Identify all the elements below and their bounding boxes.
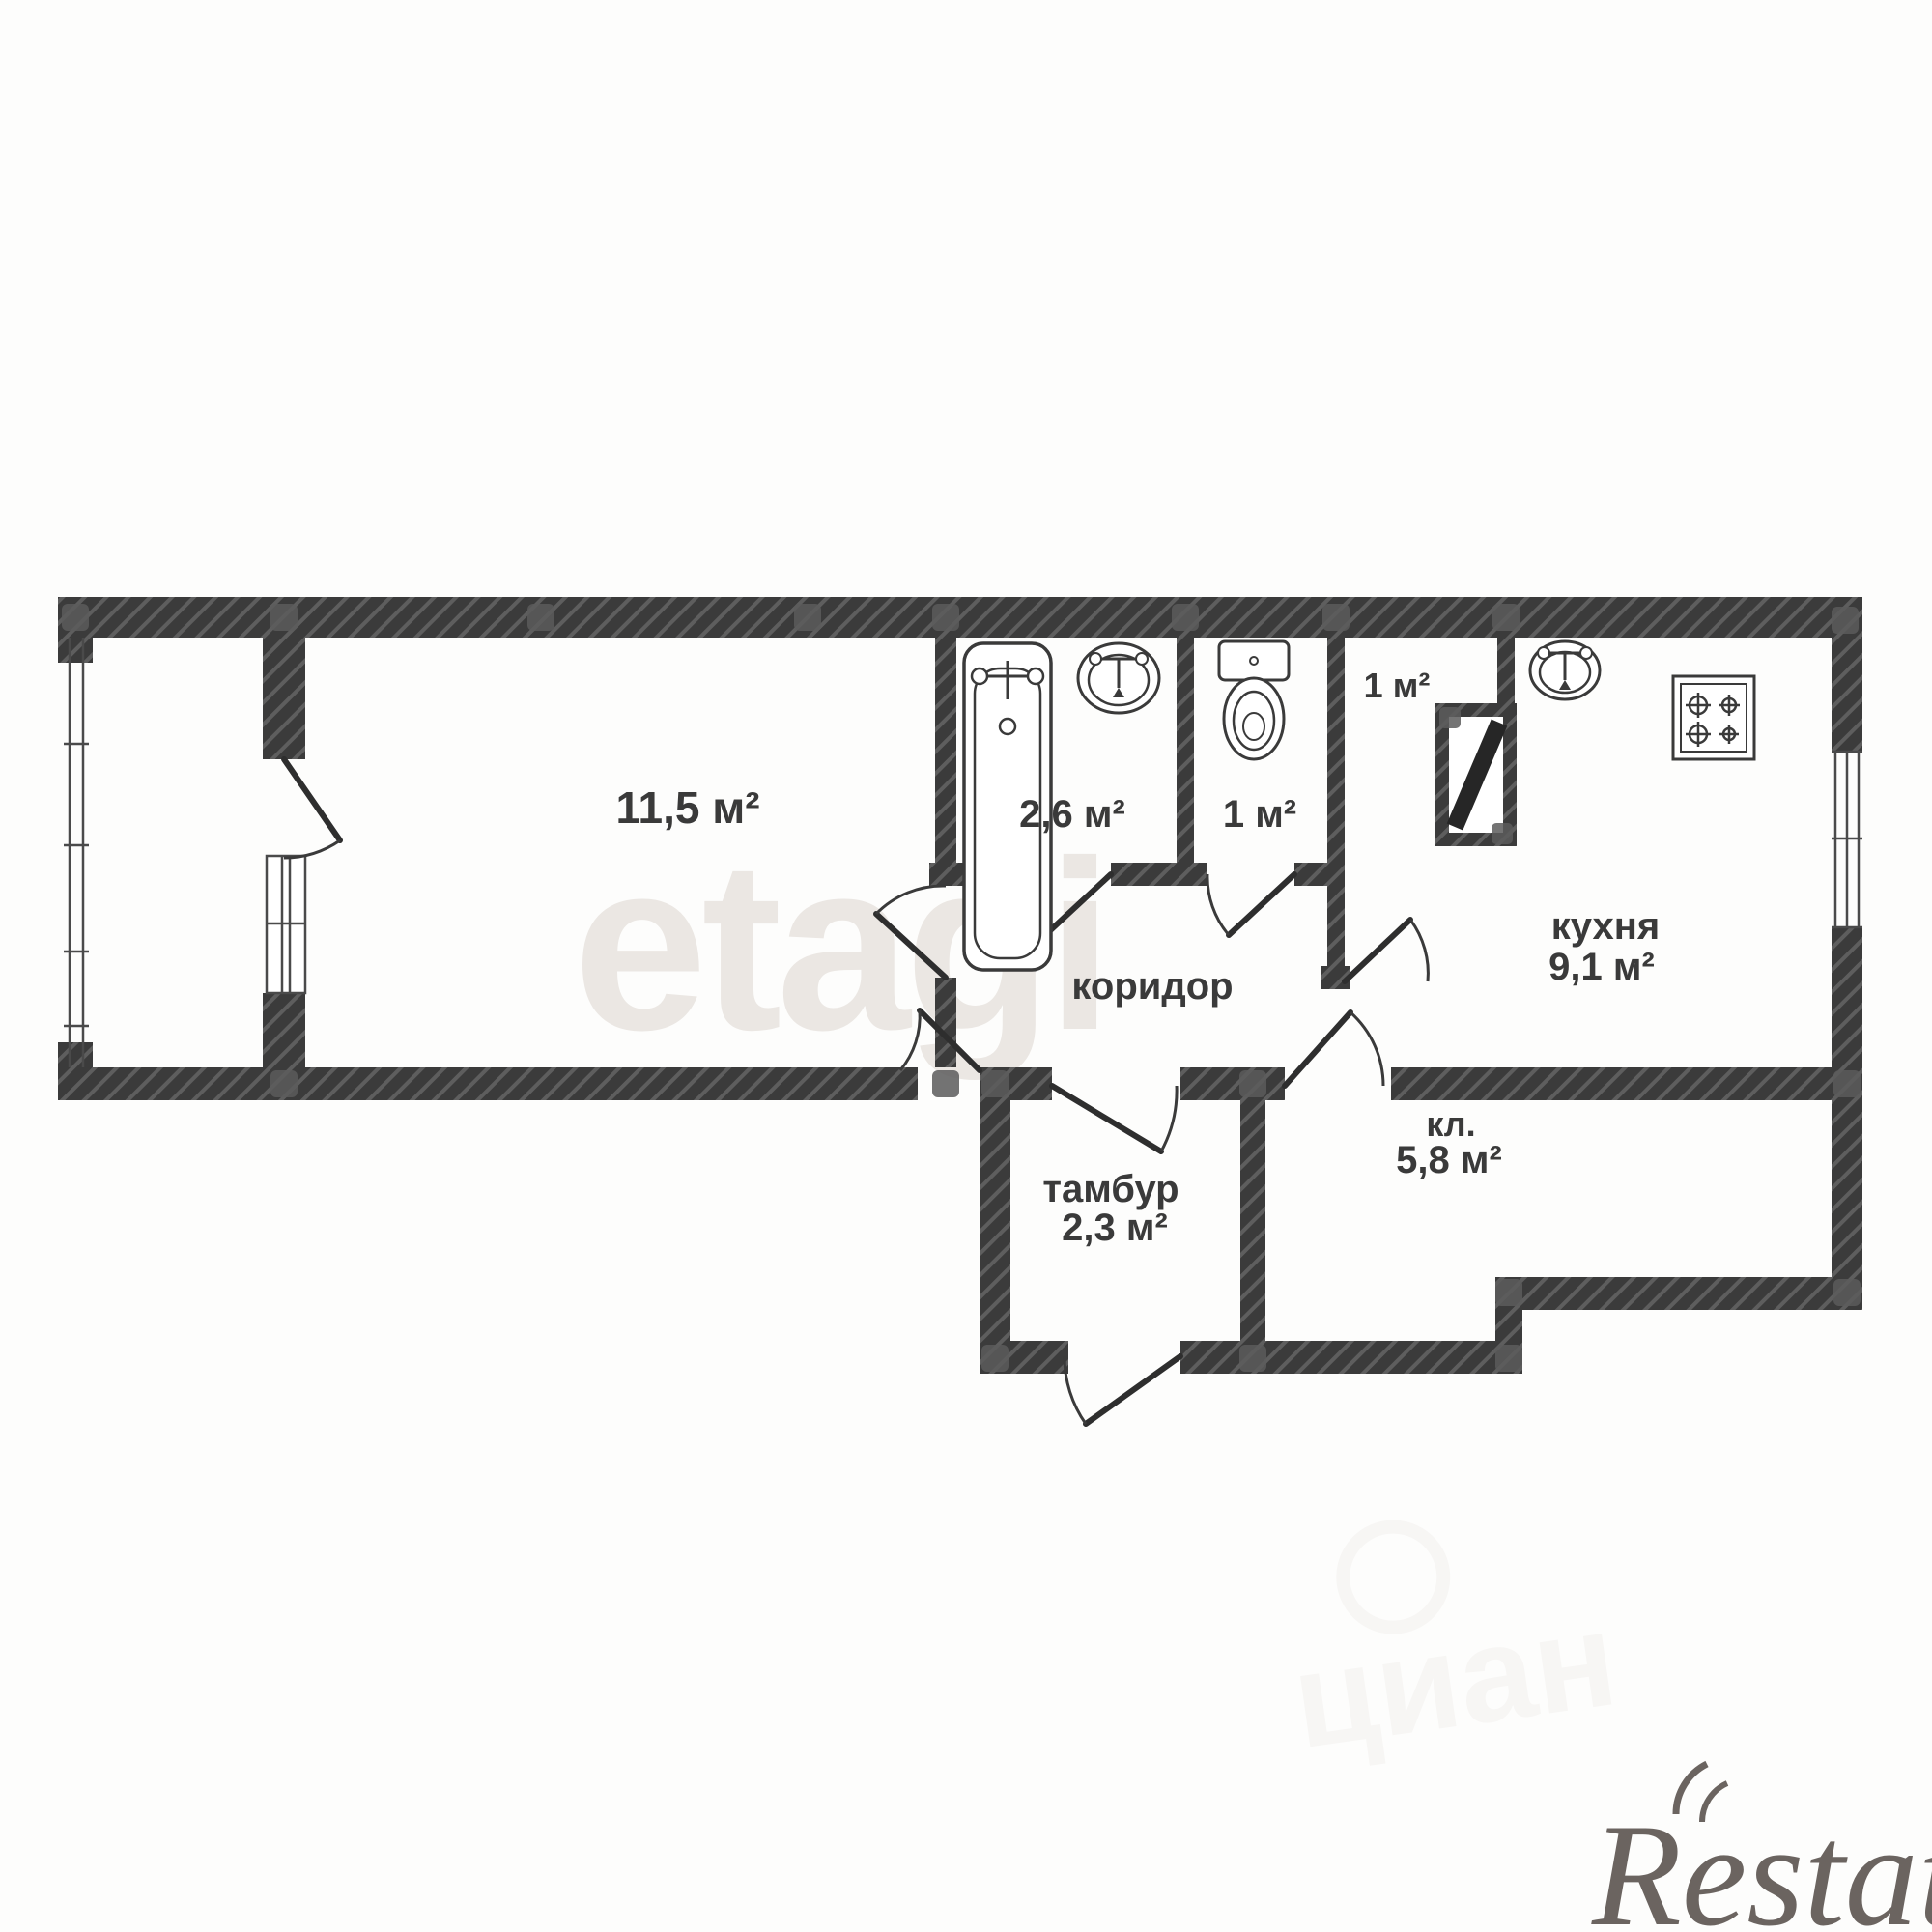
- toilet-icon: [1219, 641, 1289, 759]
- wall-tambour-storage-divider: [1240, 1100, 1265, 1341]
- wall-balcony-stub: [263, 638, 305, 759]
- wall-kitchen-bottom: [1391, 1067, 1832, 1100]
- wall-livingroom-right-lower: [935, 978, 956, 1067]
- wall-livingroom-right-upper: [935, 638, 956, 863]
- storage-area-label: 5,8 м²: [1396, 1139, 1502, 1181]
- floor-plan-drawing: etagi циан: [0, 0, 1932, 1932]
- kitchen-area-label: 9,1 м²: [1548, 946, 1655, 988]
- tambour-name-label: тамбур: [1042, 1168, 1179, 1210]
- kitchen-name-label: кухня: [1551, 905, 1661, 948]
- wall-storage-bottom-right: [1522, 1277, 1862, 1310]
- wall-livingroom-door-jamb: [929, 863, 960, 886]
- wall-bottom-main: [58, 1067, 918, 1100]
- wall-top: [58, 597, 1862, 638]
- wall-balcony-lower: [263, 993, 305, 1067]
- watermark-restate-text: Restate: [1591, 1794, 1932, 1932]
- floor-plan-page: etagi циан: [0, 0, 1932, 1932]
- wall-balcony-corner-bottom: [58, 1042, 93, 1067]
- wall-balcony-corner-top: [58, 638, 93, 663]
- wall-toilet-bottom-right: [1294, 863, 1327, 886]
- bathroom-area-label: 2,6 м²: [1019, 793, 1125, 836]
- stove-icon: [1673, 676, 1754, 759]
- wall-toilet-bottom-left: [1194, 863, 1207, 886]
- wall-bottom-lower-right: [1180, 1341, 1522, 1374]
- wall-tambour-left: [980, 1067, 1010, 1374]
- balcony-window: [267, 856, 305, 993]
- storage-name-label: кл.: [1426, 1104, 1475, 1144]
- wall-right-upper: [1832, 638, 1862, 752]
- wall-closet-kitchen-divider: [1497, 638, 1515, 707]
- wall-corridor-bottom-2: [1180, 1067, 1285, 1100]
- wall-right-lower: [1832, 927, 1862, 1310]
- toilet-area-label: 1 м²: [1223, 793, 1296, 836]
- tambour-area-label: 2,3 м²: [1062, 1207, 1168, 1249]
- corridor-name-label: коридор: [1071, 965, 1233, 1008]
- bath-sink-icon: [1078, 643, 1159, 713]
- closet-area-label: 1 м²: [1364, 666, 1431, 705]
- kitchen-sink-icon: [1530, 641, 1600, 699]
- wall-toilet-closet-divider: [1327, 638, 1345, 966]
- wall-bathroom-toilet-divider: [1177, 638, 1194, 886]
- kitchen-window: [1832, 752, 1862, 927]
- wall-corridor-bottom-1: [1010, 1067, 1052, 1100]
- living-room-area-label: 11,5 м²: [615, 782, 759, 833]
